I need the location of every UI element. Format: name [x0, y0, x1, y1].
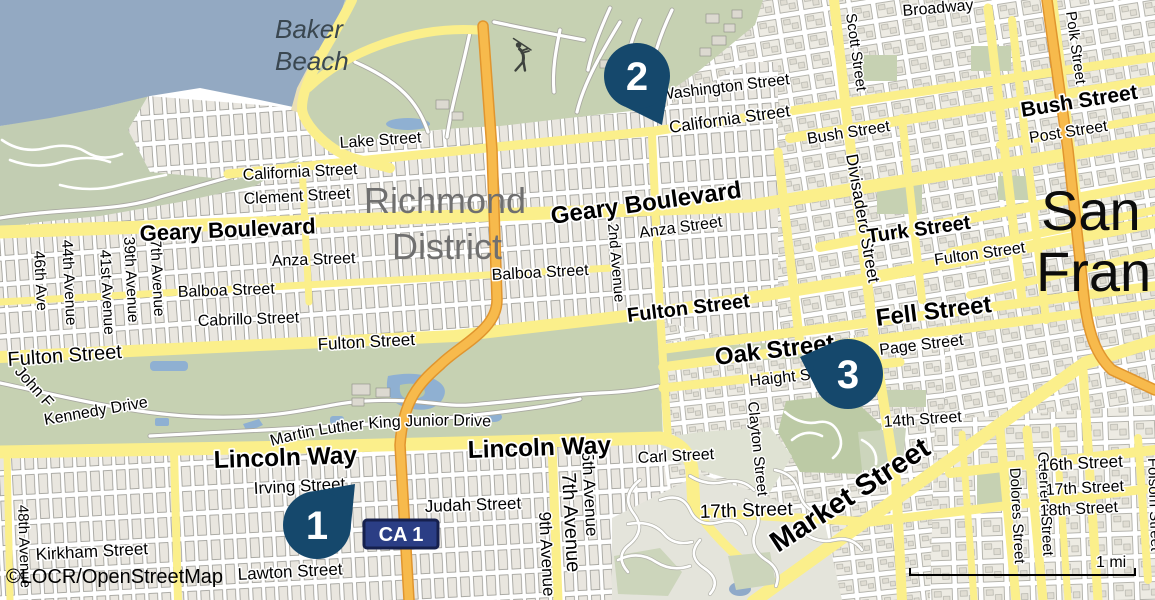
- svg-text:Beach: Beach: [275, 46, 349, 76]
- svg-text:San: San: [1041, 179, 1141, 242]
- svg-text:Judah Street: Judah Street: [424, 494, 521, 516]
- svg-text:1 mi: 1 mi: [1096, 554, 1126, 571]
- svg-text:Balboa Street: Balboa Street: [178, 281, 276, 301]
- svg-text:Richmond: Richmond: [364, 180, 526, 221]
- svg-text:3: 3: [837, 353, 859, 397]
- svg-text:Anza Street: Anza Street: [272, 250, 357, 270]
- svg-text:©LOCR/OpenStreetMap: ©LOCR/OpenStreetMap: [6, 566, 223, 588]
- svg-text:Fran: Fran: [1036, 240, 1151, 303]
- svg-text:Baker: Baker: [275, 14, 344, 44]
- svg-text:17th Street: 17th Street: [699, 499, 793, 523]
- svg-text:Lincoln Way: Lincoln Way: [213, 442, 358, 474]
- svg-text:CA 1: CA 1: [379, 524, 424, 546]
- svg-text:Lincoln Way: Lincoln Way: [467, 432, 612, 464]
- svg-text:District: District: [392, 226, 502, 267]
- svg-text:1: 1: [306, 504, 328, 548]
- svg-text:Cabrillo Street: Cabrillo Street: [198, 309, 300, 330]
- svg-text:2: 2: [626, 55, 648, 99]
- svg-text:46th Ave: 46th Ave: [30, 250, 50, 311]
